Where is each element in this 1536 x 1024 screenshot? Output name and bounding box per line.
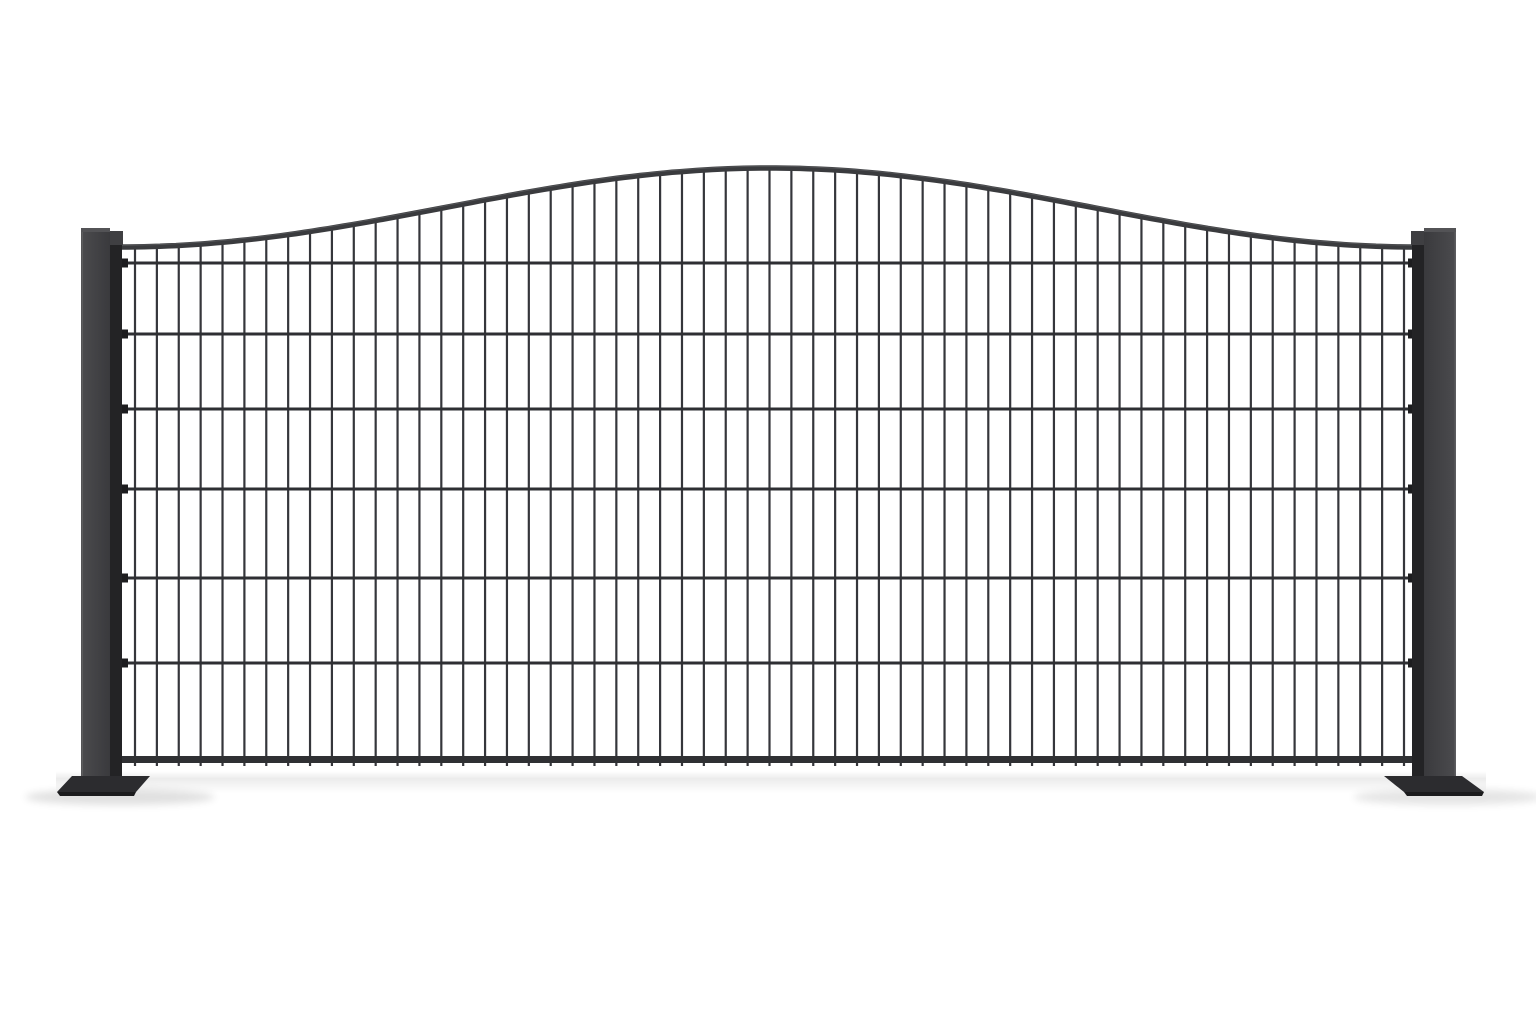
horizontal-double-wire (122, 577, 1414, 580)
post-cap-lip (110, 231, 123, 245)
post-mesh-strip (1412, 243, 1424, 788)
base-plate-top (57, 776, 150, 792)
post-cap (81, 228, 110, 232)
horizontal-double-wire (122, 662, 1414, 665)
base-plate-edge (1404, 792, 1484, 796)
mesh-panel (112, 168, 1424, 766)
post-edge-highlight (82, 232, 84, 788)
horizontal-double-wire (122, 488, 1414, 491)
bottom-rail (122, 756, 1414, 763)
base-plate-edge (57, 792, 136, 796)
right-post (1411, 228, 1456, 788)
shadow-band (56, 771, 1486, 793)
horizontal-double-wire (122, 262, 1414, 265)
post-cap-lip (1411, 231, 1424, 245)
fence-render (0, 0, 1536, 1024)
left-post (81, 228, 123, 788)
post-edge-highlight (1455, 232, 1457, 788)
ground-shadow (25, 771, 1536, 805)
post-mesh-strip (110, 243, 122, 788)
product-image (0, 0, 1536, 1024)
post-cap (1424, 228, 1456, 232)
post-body (1424, 228, 1456, 788)
horizontal-double-wire (122, 333, 1414, 336)
post-body (81, 228, 110, 788)
arch-top-bar (120, 166, 1416, 247)
horizontal-double-wire (122, 408, 1414, 411)
arch-bar (120, 168, 1416, 247)
